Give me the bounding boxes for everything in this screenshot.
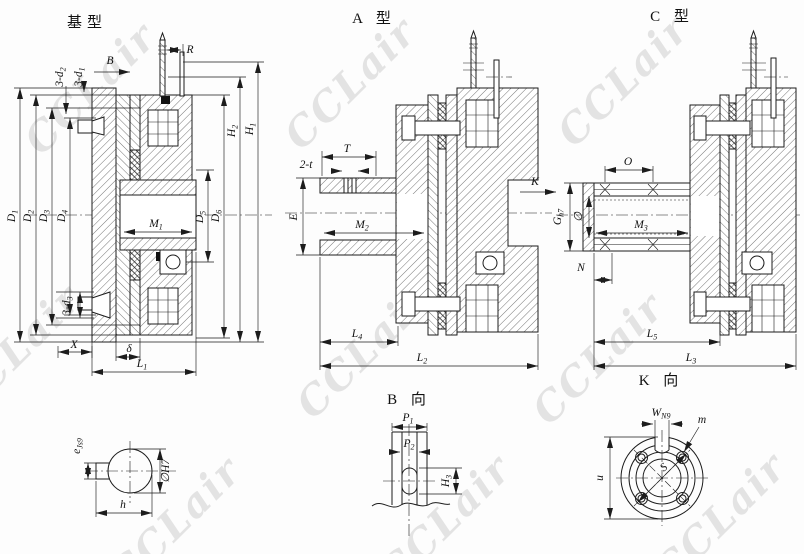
dim-label-type_a-M2: M2	[354, 219, 369, 233]
dim-label-type_c-sym: ∅	[573, 211, 585, 222]
drawing-sheet: CCLairCCLairCCLairCCLairCCLairCCLairCCLa…	[0, 0, 804, 554]
dim-label-base-D2: D2	[22, 210, 36, 223]
dim-label-type_a-2t: 2-t	[300, 159, 314, 171]
dim-label-view_k-m: m	[698, 414, 706, 426]
dim-label-base-3d2: 3-d2	[54, 67, 68, 87]
technical-drawing: CCLairCCLairCCLairCCLairCCLairCCLairCCLa…	[0, 0, 804, 554]
dim-label-type_a-E: E	[288, 213, 300, 221]
dim-label-type_c-M3: M3	[633, 219, 648, 233]
dim-label-view_k-u: u	[594, 475, 606, 481]
dim-label-base-D1: D1	[6, 210, 20, 223]
title-view_k: K 向	[639, 372, 684, 389]
watermark-text-7: CCLair	[370, 444, 521, 554]
title-view_b: B 向	[387, 391, 431, 408]
dim-label-view_b-P2: P2	[402, 438, 414, 452]
dim-label-type_c-O: O	[624, 156, 633, 168]
watermark-text-8: CCLair	[645, 442, 796, 554]
title-type_c: C 型	[650, 8, 694, 25]
dim-label-base-H2: H2	[226, 125, 240, 138]
title-type_a: A 型	[352, 10, 396, 27]
dim-label-bore_detail-h: h	[120, 499, 126, 511]
dim-label-base-H1: H1	[244, 123, 258, 136]
dim-label-base-L1: L1	[136, 358, 147, 372]
dim-label-base-X: X	[69, 339, 78, 351]
dim-label-type_a-T: T	[344, 143, 352, 155]
dim-label-base-D4: D4	[56, 210, 70, 223]
dim-label-view_b-H3: H3	[440, 475, 454, 488]
dim-label-view_k-S: S	[658, 461, 670, 474]
dim-label-base-sym: δ	[126, 343, 132, 355]
dim-label-base-D3: D3	[38, 210, 52, 223]
dim-label-type_c-L3: L3	[685, 352, 696, 366]
dim-label-base-D6: D6	[210, 210, 224, 223]
dim-label-type_c-Gh7: Gh7	[552, 208, 566, 225]
view-k-geometry	[604, 420, 708, 526]
dim-label-type_c-N: N	[576, 262, 586, 274]
dim-label-view_b-P1: P1	[401, 412, 413, 426]
dim-label-base-R: R	[185, 44, 193, 56]
watermark-text-2: CCLair	[548, 4, 699, 155]
dim-label-bore_detail-H7: ∅H7	[160, 458, 172, 483]
dim-label-type_a-K: K	[530, 176, 540, 188]
title-base: 基型	[67, 14, 107, 31]
dim-label-type_a-L2: L2	[416, 352, 427, 366]
dim-label-view_k-WN9: WN9	[652, 407, 671, 421]
dim-label-bore_detail-eJs9: eJs9	[71, 438, 85, 454]
dim-label-base-B: B	[106, 55, 113, 67]
